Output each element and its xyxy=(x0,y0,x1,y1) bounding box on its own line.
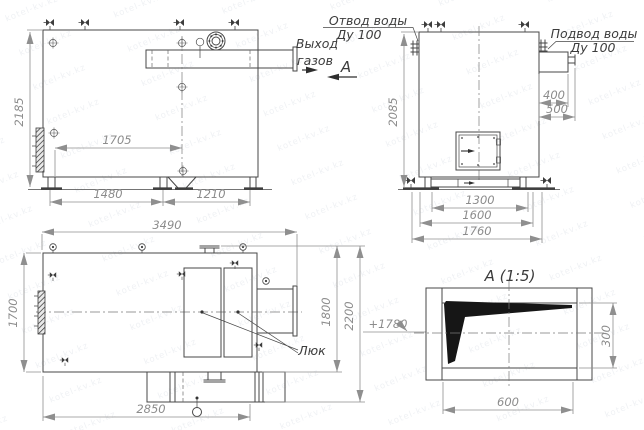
water-inlet-callout: Подвод воды Ду 100 xyxy=(548,26,638,55)
front-view: 2185 1705 1480 1210 Выход газов А xyxy=(12,19,357,206)
side-view-outlet-flange xyxy=(411,41,419,55)
dim-side-400: 400 xyxy=(543,88,565,102)
section-a-letter: А xyxy=(340,58,351,76)
plan-view-body xyxy=(43,253,257,372)
plan-view-valve-icons xyxy=(48,244,270,366)
plan-view-chimney-flange xyxy=(200,246,219,253)
dim-side-height: 2085 xyxy=(386,97,400,126)
level-mark: +1780 xyxy=(369,317,408,331)
side-view-valve-icons xyxy=(405,21,552,188)
dim-detail-height: 300 xyxy=(599,325,613,347)
gas-outlet-label-line2: газов xyxy=(297,53,333,68)
water-outlet-label: Отвод воды xyxy=(329,13,407,28)
dim-detail-width: 600 xyxy=(497,395,519,409)
detail-title: А (1:5) xyxy=(484,267,536,285)
detail-weld-seam xyxy=(444,301,572,364)
dim-plan-length: 3490 xyxy=(152,218,181,232)
front-view-body xyxy=(43,30,258,177)
front-view-dimensions xyxy=(27,30,250,206)
dim-side-1600: 1600 xyxy=(462,208,491,222)
detail-view-a: А (1:5) 600 300 xyxy=(414,267,617,414)
side-view-water-box xyxy=(539,52,575,72)
water-inlet-label: Подвод воды xyxy=(551,26,638,41)
dim-front-top: 1705 xyxy=(102,133,131,147)
water-outlet-size: Ду 100 xyxy=(336,27,382,42)
front-view-burner-flange xyxy=(32,128,44,172)
front-view-valve-icons xyxy=(44,19,240,30)
front-view-hidden-lines xyxy=(152,50,250,68)
dim-plan-width: 1700 xyxy=(6,298,20,327)
dim-plan-1800: 1800 xyxy=(319,297,333,326)
side-view: 2085 400 500 1300 1600 1760 Отвод воды Д… xyxy=(323,13,638,243)
dim-side-500: 500 xyxy=(546,102,568,116)
boiler-technical-drawing: 2185 1705 1480 1210 Выход газов А xyxy=(0,0,644,430)
drawing-sheet: kotel-kv.kz kotel-kv.kz kotel-kv.kz kote… xyxy=(0,0,644,430)
dim-front-bottom-right: 1210 xyxy=(196,187,225,201)
front-view-sensor-port xyxy=(196,38,204,58)
plan-view-hatches xyxy=(184,268,298,357)
dim-plan-2200: 2200 xyxy=(342,301,356,330)
side-view-inlet-flange xyxy=(539,40,547,52)
hatch-label: Люк xyxy=(297,343,326,358)
dim-side-1300: 1300 xyxy=(465,193,494,207)
gas-outlet-label-line1: Выход xyxy=(296,36,338,51)
plan-view-bottom-box xyxy=(147,372,285,417)
plan-view-flue-duct xyxy=(257,286,297,336)
detail-dimensions xyxy=(443,303,617,414)
dim-front-bottom-left: 1480 xyxy=(93,187,122,201)
plan-view: Люк 3490 1700 2850 1800 220 xyxy=(6,218,426,421)
plan-view-dimensions xyxy=(24,232,365,421)
dim-side-1760: 1760 xyxy=(462,224,491,238)
dim-front-height: 2185 xyxy=(12,97,26,126)
dim-plan-bottom: 2850 xyxy=(136,402,165,416)
front-view-flue-duct xyxy=(146,47,297,71)
side-view-door xyxy=(456,132,501,170)
water-inlet-size: Ду 100 xyxy=(570,40,616,55)
side-view-legs xyxy=(425,177,526,188)
side-view-base-box xyxy=(458,179,508,187)
level-mark-callout: +1780 xyxy=(363,317,426,332)
plan-view-burner-flange xyxy=(34,291,45,334)
front-view-datum-marks xyxy=(48,38,189,177)
front-view-top-flange-circle xyxy=(207,32,225,50)
